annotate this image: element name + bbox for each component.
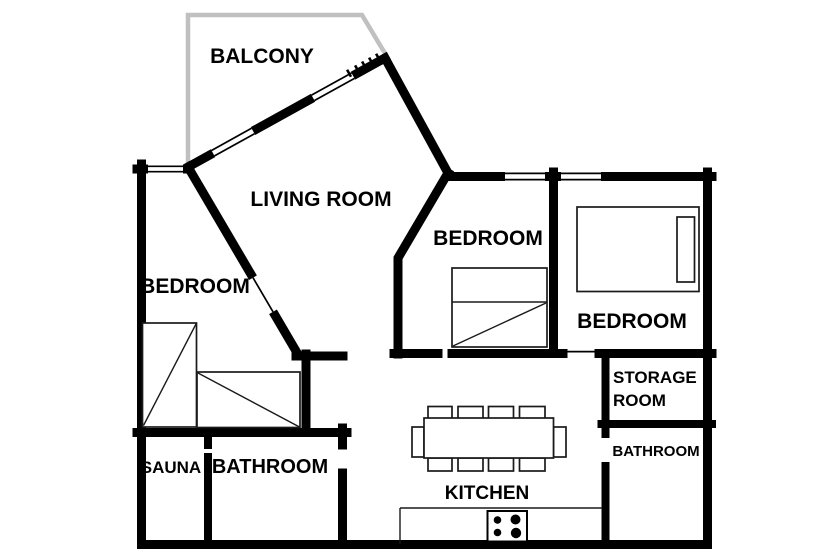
room-label-storage-line1: STORAGE [613, 368, 697, 387]
balcony-outline [188, 15, 386, 166]
bed-icon-left-vertical [143, 323, 197, 427]
dining-table [412, 407, 566, 472]
room-label-sauna: SAUNA [141, 458, 201, 477]
room-label-bathroom-right: BATHROOM [612, 443, 699, 460]
room-label-balcony: BALCONY [210, 45, 314, 68]
stove-icon [488, 511, 528, 542]
room-label-living-room: LIVING ROOM [250, 188, 391, 211]
room-label-bathroom-left: BATHROOM [212, 456, 328, 478]
room-label-bedroom-middle: BEDROOM [433, 227, 543, 250]
room-label-bedroom-left: BEDROOM [140, 275, 250, 298]
room-label-kitchen: KITCHEN [445, 483, 529, 504]
floor-plan-page: BALCONY LIVING ROOM BEDROOM BEDROOM BEDR… [0, 0, 831, 555]
bed-icon-left-horizontal [197, 372, 300, 428]
floor-plan-drawing: BALCONY LIVING ROOM BEDROOM BEDROOM BEDR… [0, 0, 831, 555]
room-label-bedroom-right: BEDROOM [577, 310, 687, 333]
bed-icon-middle-bedroom [452, 268, 547, 347]
bed-icon-right-bedroom [577, 207, 699, 292]
room-label-storage-line2: ROOM [613, 391, 666, 410]
